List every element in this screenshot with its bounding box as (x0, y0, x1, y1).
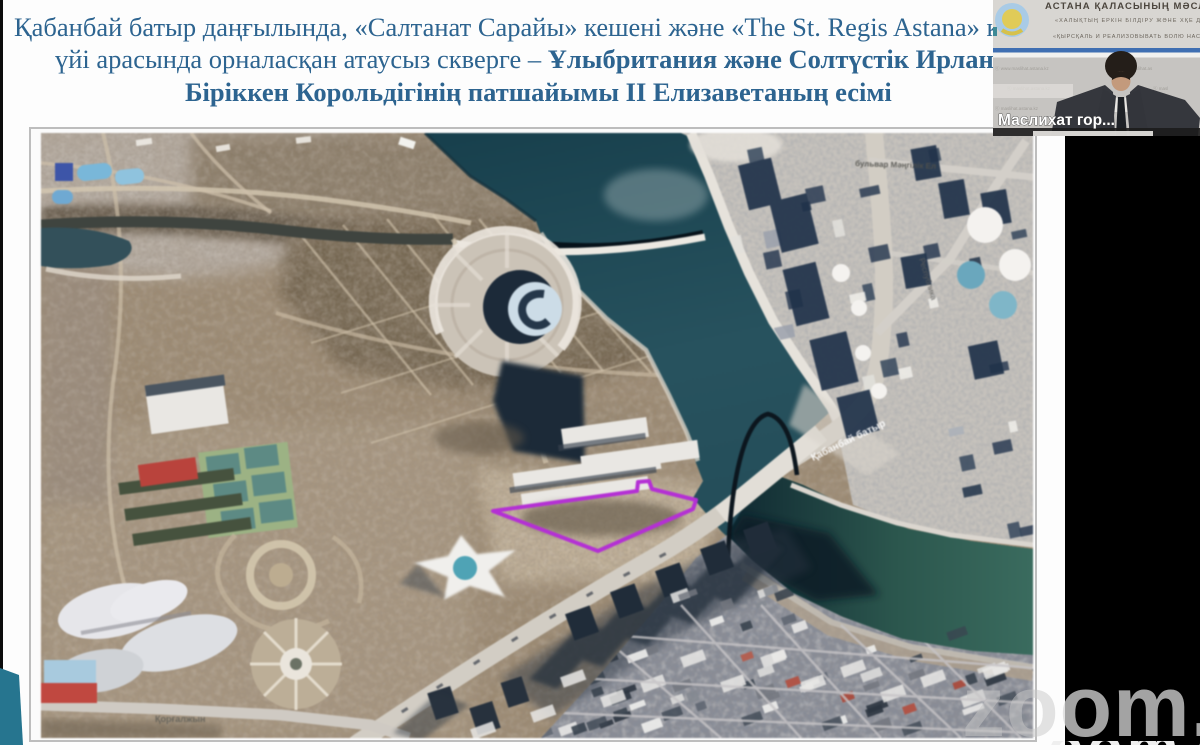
svg-text:«ҚЫРСҚАЛЬ И РЕАЛИЗОВЫВАТЬ ВОЛЮ: «ҚЫРСҚАЛЬ И РЕАЛИЗОВЫВАТЬ ВОЛЮ НАС (1053, 34, 1200, 40)
svg-text:АСТАНА ҚАЛАСЫНЫҢ МӘСЛ: АСТАНА ҚАЛАСЫНЫҢ МӘСЛ (1045, 1, 1200, 12)
svg-text:Маслихат гор...: Маслихат гор... (998, 112, 1115, 129)
svg-text:ⓔ maslihat.astana.kz: ⓔ maslihat.astana.kz (995, 105, 1039, 112)
svg-text:Қорғалжын: Қорғалжын (155, 714, 205, 724)
svg-text:ⓔ www.maslihat.astana.kz: ⓔ www.maslihat.astana.kz (995, 65, 1050, 72)
svg-text:«ХАЛЫҚТЫҢ ЕРКІН БІЛДІРУ ЖӘНЕ Х: «ХАЛЫҚТЫҢ ЕРКІН БІЛДІРУ ЖӘНЕ ХҚЕ Д (1055, 18, 1200, 24)
